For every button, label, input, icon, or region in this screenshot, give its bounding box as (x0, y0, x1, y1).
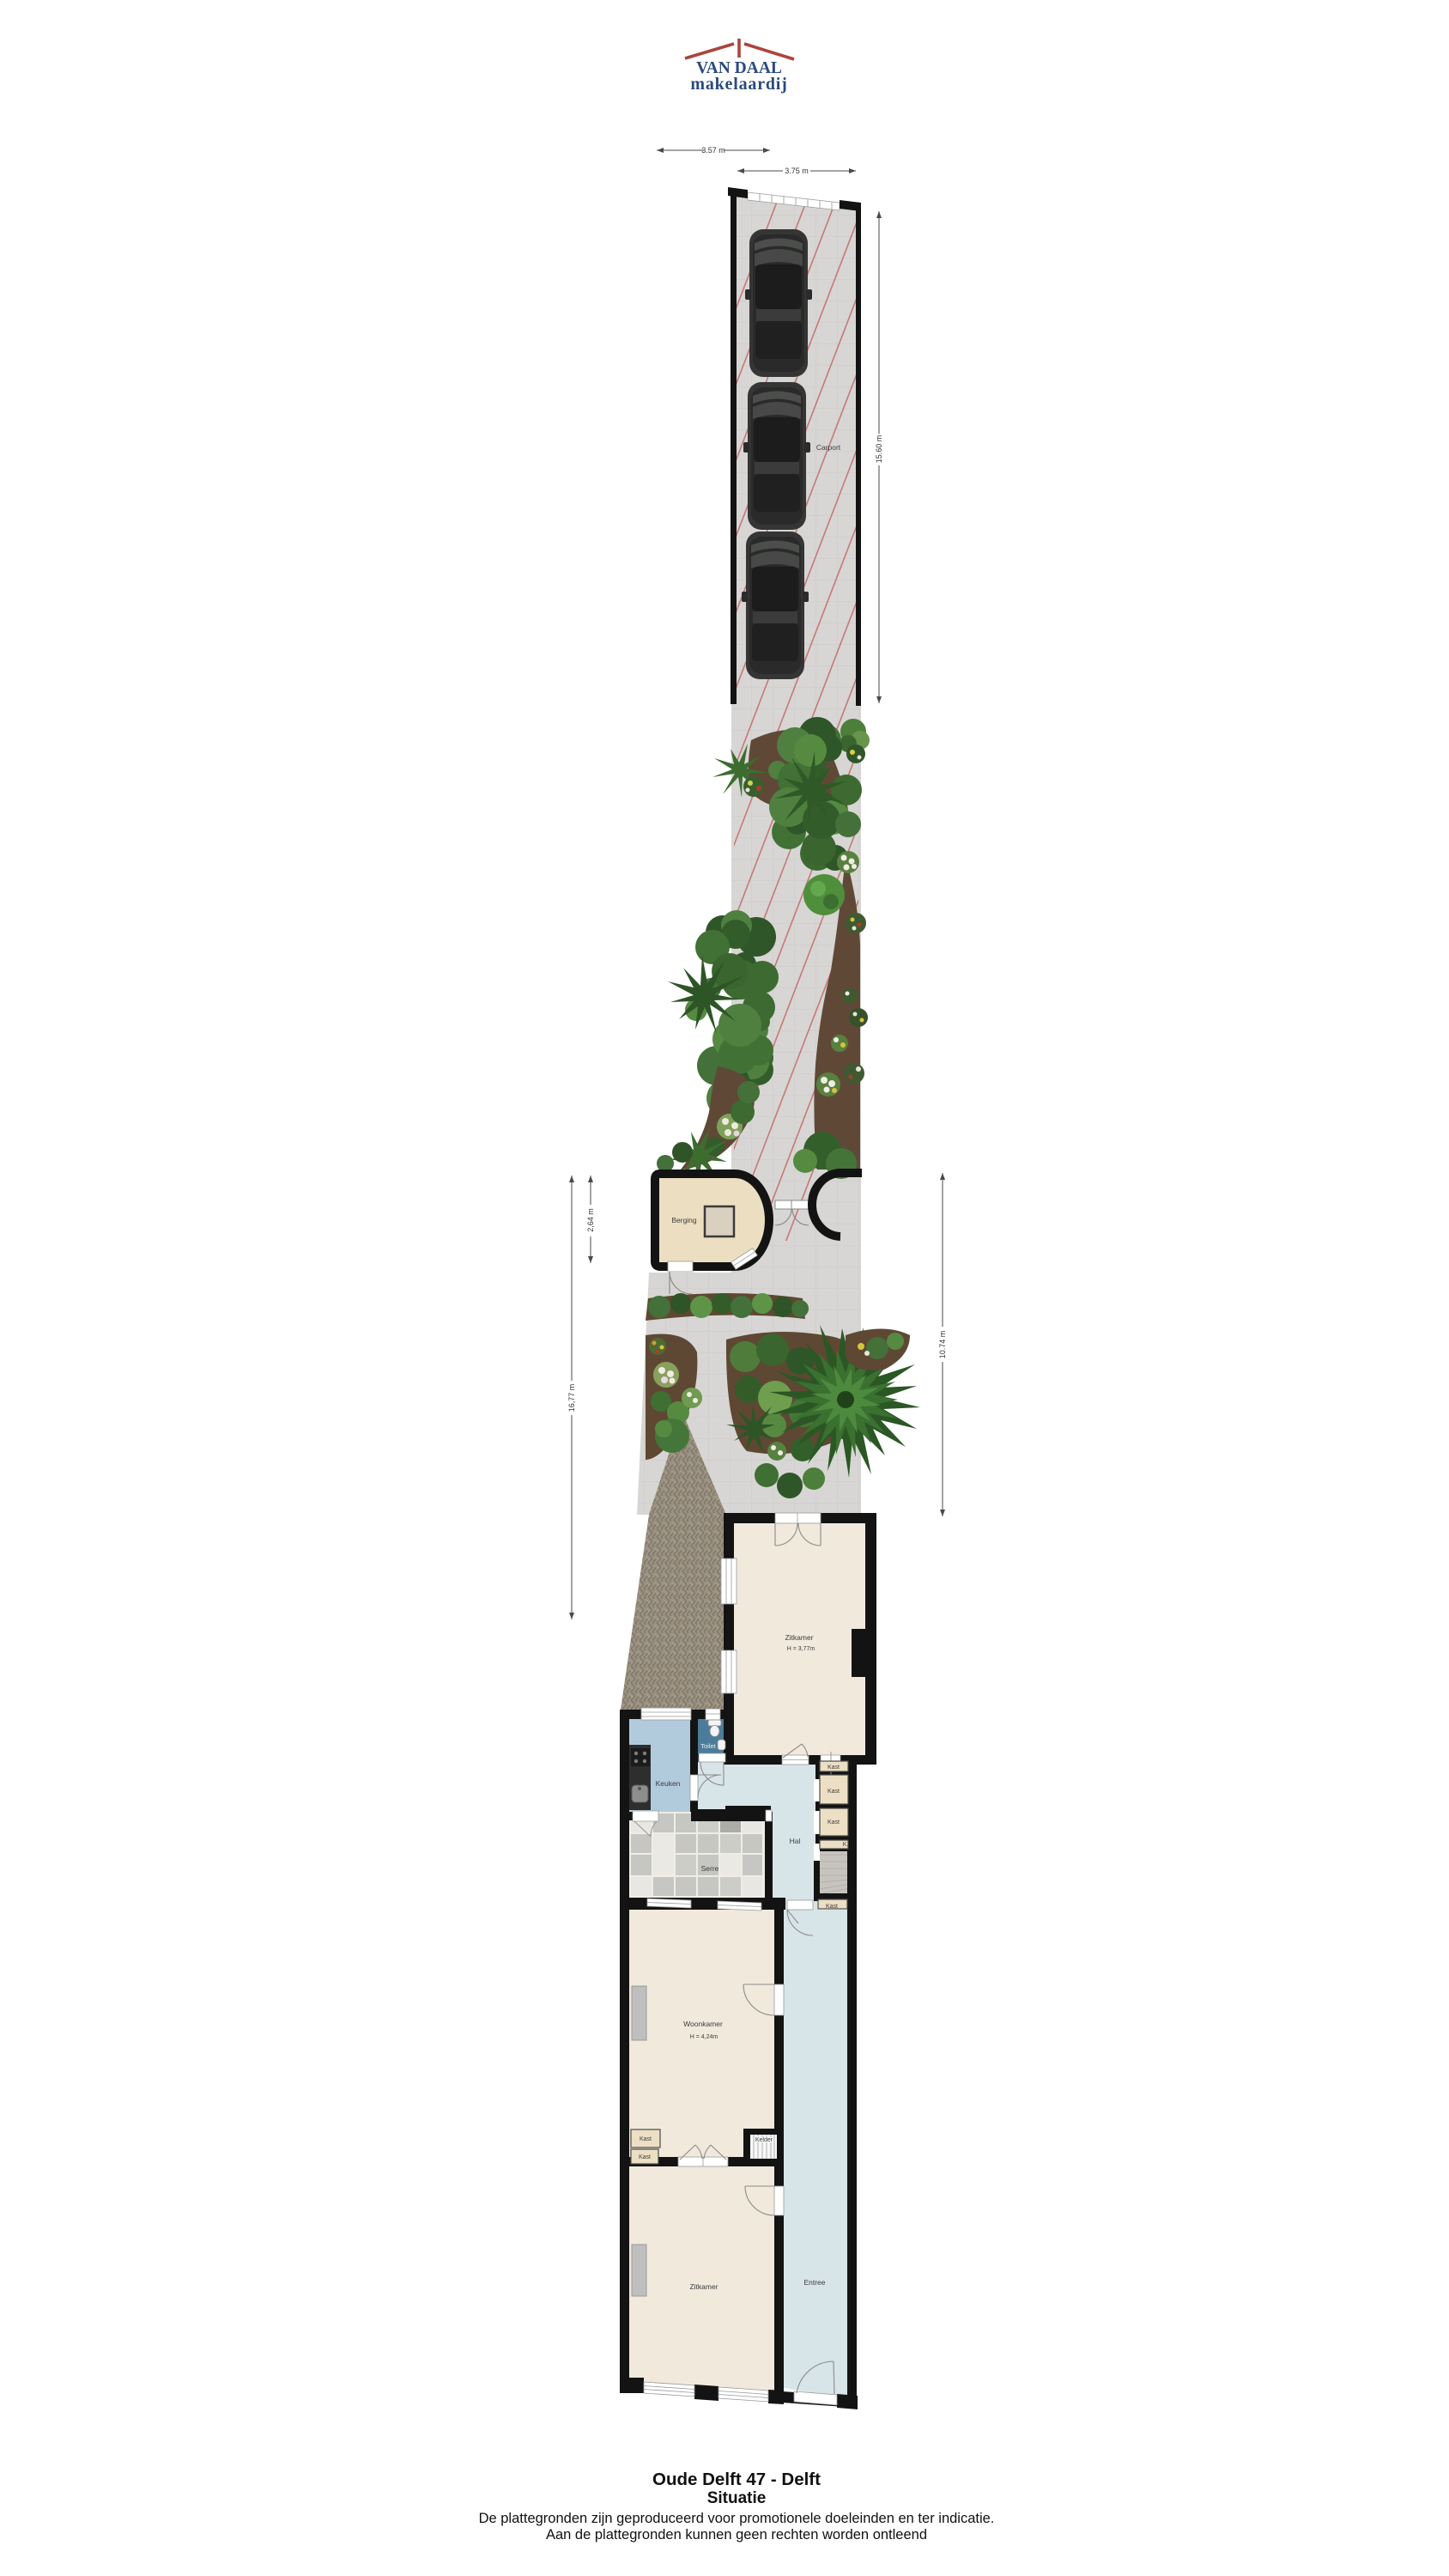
svg-text:Aan de plattegronden kunnen ge: Aan de plattegronden kunnen geen rechten… (546, 2527, 927, 2543)
svg-text:Woonkamer: Woonkamer (683, 2020, 723, 2028)
svg-text:Carport: Carport (816, 443, 841, 452)
svg-text:2,64 m: 2,64 m (586, 1208, 595, 1232)
svg-text:H = 3,77m: H = 3,77m (787, 1646, 815, 1652)
svg-text:Kast: Kast (639, 2154, 651, 2160)
svg-text:H = 4,24m: H = 4,24m (690, 2034, 718, 2040)
svg-text:Situatie: Situatie (707, 2489, 767, 2507)
svg-text:Kast: Kast (640, 2136, 652, 2142)
svg-text:Keuken: Keuken (656, 1779, 681, 1788)
svg-text:Serre: Serre (701, 1864, 719, 1873)
svg-text:10.74 m: 10.74 m (938, 1331, 947, 1359)
svg-text:Berging: Berging (671, 1216, 697, 1224)
svg-text:Kast: Kast (828, 1789, 840, 1795)
svg-text:makelaardij: makelaardij (690, 75, 787, 94)
svg-text:Hal: Hal (790, 1837, 801, 1845)
svg-text:3.75 m: 3.75 m (785, 167, 809, 175)
svg-text:16,77 m: 16,77 m (567, 1384, 576, 1413)
svg-text:Oude Delft 47 - Delft: Oude Delft 47 - Delft (652, 2470, 821, 2489)
svg-text:3.57 m: 3.57 m (701, 146, 725, 155)
svg-text:15.60 m: 15.60 m (875, 435, 883, 464)
svg-text:Toilet: Toilet (700, 1742, 716, 1750)
svg-text:Kast: Kast (828, 1765, 840, 1771)
svg-text:Entree: Entree (803, 2278, 825, 2287)
svg-text:K.: K. (843, 1842, 849, 1848)
svg-text:Kelder: Kelder (755, 2137, 773, 2143)
svg-text:Kast: Kast (828, 1820, 840, 1826)
svg-text:Zitkamer: Zitkamer (689, 2282, 718, 2291)
svg-text:Kast: Kast (826, 1904, 838, 1910)
svg-text:Zitkamer: Zitkamer (785, 1633, 813, 1642)
svg-text:De plattegronden zijn geproduc: De plattegronden zijn geproduceerd voor … (479, 2511, 995, 2526)
